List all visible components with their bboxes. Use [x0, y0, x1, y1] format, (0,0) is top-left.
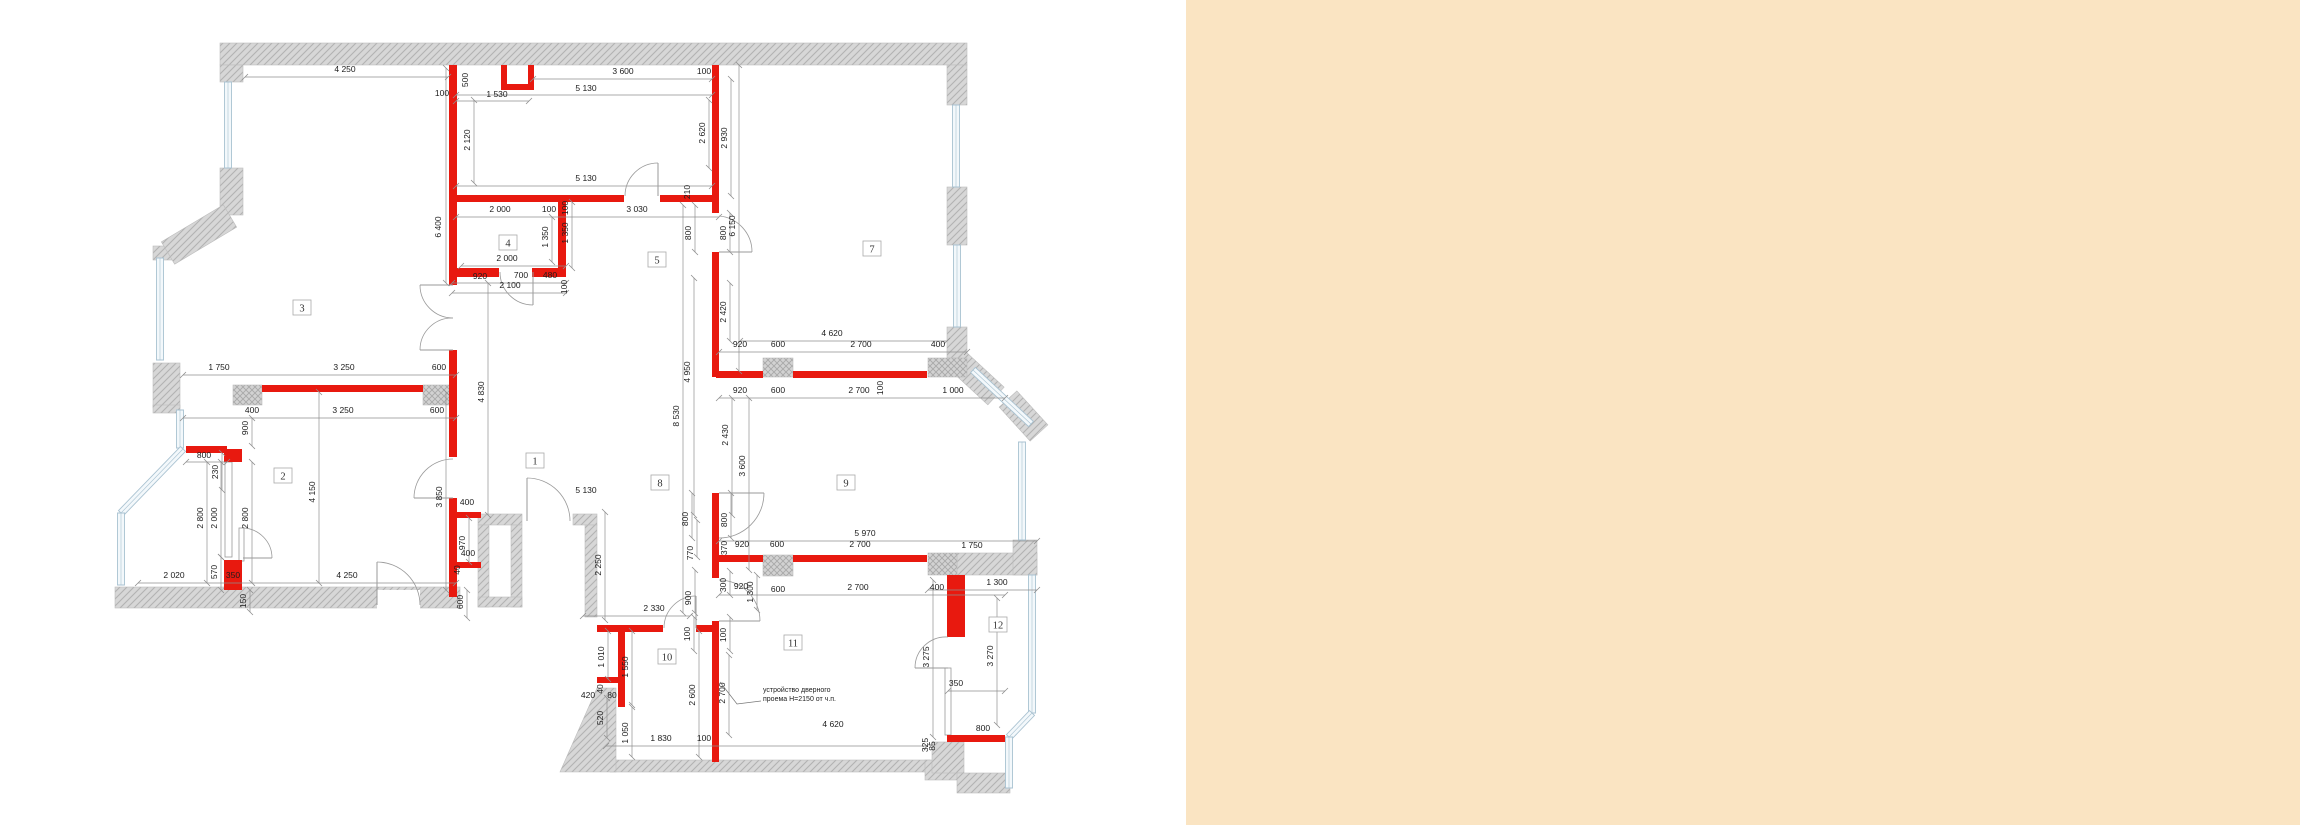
dimension-label: 3 030 — [626, 204, 648, 214]
dimension-label: 2 700 — [849, 539, 871, 549]
thin-partition — [239, 528, 244, 561]
dimension-label: 600 — [430, 405, 444, 415]
dimension-label: 2 800 — [240, 507, 250, 529]
dimension-label: 1 300 — [745, 581, 755, 603]
dimension-label: 1 010 — [596, 646, 606, 668]
dimension-label: 2 700 — [850, 339, 872, 349]
existing-wall — [947, 65, 967, 105]
room-number-label: 7 — [869, 245, 874, 256]
dimension-label: 3 600 — [612, 66, 634, 76]
dimension-label: 2 020 — [163, 570, 185, 580]
room-number-label: 11 — [788, 639, 798, 650]
dimension-label: 2 800 — [195, 507, 205, 529]
dimension-label: 2 700 — [717, 682, 727, 704]
room-number-label: 8 — [657, 479, 662, 490]
room-number-label: 3 — [299, 304, 304, 315]
dimension-label: 350 — [226, 570, 240, 580]
dimension-label: 370 — [719, 541, 729, 555]
dimension-label: 400 — [930, 582, 944, 592]
dimension-label: 920 — [473, 271, 487, 281]
dimension-label: 600 — [432, 362, 446, 372]
existing-pillar — [763, 358, 793, 377]
dimension-label: 2 330 — [643, 603, 665, 613]
existing-wall — [573, 514, 597, 525]
dimension-label: 1 350 — [540, 226, 550, 248]
dimension-label: 600 — [455, 595, 465, 609]
dimension-label: 4 830 — [476, 381, 486, 403]
new-wall-red — [793, 555, 927, 562]
dimension-label: 350 — [949, 678, 963, 688]
dimension-label: 800 — [683, 226, 693, 240]
dimension-label: 1 750 — [961, 540, 983, 550]
dimension-label: 920 — [733, 385, 747, 395]
dimension-label: 5 130 — [575, 83, 597, 93]
dimension-label: 400 — [245, 405, 259, 415]
dimension-label: 500 — [460, 73, 470, 87]
new-wall-red — [457, 512, 481, 518]
annotation-text-line1: устройство дверного — [763, 686, 831, 694]
dimension-label: 520 — [595, 711, 605, 725]
dimension-label: 40 — [452, 565, 462, 575]
dimension-label: 2 430 — [720, 424, 730, 446]
dimension-label: 600 — [771, 385, 785, 395]
new-wall-red — [597, 677, 618, 683]
dimension-label: 100 — [718, 628, 728, 642]
dimension-label: 5 130 — [575, 173, 597, 183]
new-wall-red — [449, 350, 457, 457]
dimension-label: 5 970 — [854, 528, 876, 538]
room-number-label: 10 — [662, 653, 673, 664]
dimension-label: 800 — [197, 450, 211, 460]
dimension-label: 100 — [559, 280, 569, 294]
dimension-label: 100 — [697, 733, 711, 743]
dimension-label: 900 — [683, 591, 693, 605]
dimension-label: 100 — [682, 627, 692, 641]
room-number-label: 9 — [843, 479, 848, 490]
dimension-label: 800 — [976, 723, 990, 733]
dimension-label: 420 — [581, 690, 595, 700]
dimension-label: 6 150 — [727, 215, 737, 237]
dimension-label: 3 600 — [737, 455, 747, 477]
dimension-label: 100 — [697, 66, 711, 76]
new-wall-red — [262, 385, 423, 392]
new-wall-red — [712, 493, 719, 578]
annotation-text-line2: проема H=2150 от ч.п. — [763, 696, 836, 703]
dimension-label: 100 — [560, 201, 570, 215]
dimension-label: 600 — [770, 539, 784, 549]
dimension-label: 230 — [210, 465, 220, 479]
existing-wall — [511, 525, 522, 607]
dimension-label: 2 620 — [697, 122, 707, 144]
dimension-label: 700 — [514, 270, 528, 280]
dimension-label: 100 — [435, 88, 449, 98]
dimension-label: 800 — [719, 513, 729, 527]
floor-plan-page: 4 2501005001 5303 6001005 1302 1202 6202… — [0, 0, 2300, 825]
dimension-label: 2 930 — [719, 127, 729, 149]
existing-wall — [947, 187, 967, 245]
dimension-label: 3 275 — [921, 646, 931, 668]
dimension-label: 85 — [927, 741, 937, 751]
dimension-label: 3 270 — [985, 645, 995, 667]
dimension-label: 800 — [680, 512, 690, 526]
dimension-label: 2 000 — [489, 204, 511, 214]
existing-pillar — [763, 555, 793, 576]
dimension-label: 2 120 — [462, 129, 472, 151]
dimension-label: 6 400 — [433, 216, 443, 238]
dimension-label: 570 — [209, 565, 219, 579]
dimension-label: 40 — [595, 684, 605, 694]
dimension-label: 1 350 — [560, 222, 570, 244]
new-wall-red — [947, 575, 965, 637]
existing-wall — [220, 43, 967, 65]
room-number-label: 4 — [505, 239, 511, 250]
dimension-label: 1 530 — [486, 89, 508, 99]
dimension-label: 770 — [685, 546, 695, 560]
dimension-label: 4 250 — [336, 570, 358, 580]
new-wall-red — [449, 195, 624, 202]
dimension-label: 5 130 — [575, 485, 597, 495]
new-wall-red — [793, 371, 927, 378]
dimension-label: 4 620 — [821, 328, 843, 338]
dimension-label: 2 600 — [687, 684, 697, 706]
room-number-label: 1 — [532, 457, 537, 468]
dimension-label: 300 — [718, 578, 728, 592]
dimension-label: 4 250 — [334, 64, 356, 74]
dimension-label: 4 950 — [682, 361, 692, 383]
dimension-label: 400 — [931, 339, 945, 349]
dimension-label: 900 — [240, 421, 250, 435]
existing-wall — [478, 514, 522, 525]
dimension-label: 8 530 — [671, 405, 681, 427]
existing-wall — [220, 65, 243, 82]
new-wall-red — [449, 498, 457, 597]
dimension-label: 1 750 — [208, 362, 230, 372]
dimension-label: 400 — [460, 497, 474, 507]
room-number-label: 12 — [993, 621, 1004, 632]
dimension-label: 480 — [543, 270, 557, 280]
dimension-label: 2 420 — [718, 301, 728, 323]
dimension-label: 920 — [733, 339, 747, 349]
dimension-label: 1 830 — [650, 733, 672, 743]
dimension-label: 4 620 — [822, 719, 844, 729]
existing-pillar — [928, 358, 967, 377]
dimension-label: 80 — [607, 690, 617, 700]
existing-pillar — [928, 553, 957, 575]
dimension-label: 2 000 — [496, 253, 518, 263]
dimension-label: 210 — [682, 185, 692, 199]
dimension-label: 2 700 — [847, 582, 869, 592]
new-wall-red — [947, 735, 1005, 742]
floor-plan-drawing: 4 2501005001 5303 6001005 1302 1202 6202… — [0, 0, 2300, 825]
existing-wall — [957, 773, 1010, 793]
room-number-label: 5 — [654, 256, 659, 267]
side-panel — [1186, 0, 2300, 825]
dimension-label: 100 — [542, 204, 556, 214]
dimension-label: 150 — [238, 594, 248, 608]
new-wall-red — [224, 449, 242, 462]
existing-wall — [478, 597, 522, 607]
dimension-label: 3 850 — [434, 486, 444, 508]
dimension-label: 1 000 — [942, 385, 964, 395]
dimension-label: 1 550 — [620, 656, 630, 678]
dimension-label: 2 000 — [209, 507, 219, 529]
existing-wall — [153, 405, 180, 413]
dimension-label: 600 — [771, 339, 785, 349]
dimension-label: 3 250 — [332, 405, 354, 415]
dimension-label: 1 050 — [620, 722, 630, 744]
thin-partition — [225, 462, 232, 557]
dimension-label: 1 300 — [986, 577, 1008, 587]
dimension-label: 4 150 — [307, 481, 317, 503]
dimension-label: 920 — [735, 539, 749, 549]
dimension-label: 2 250 — [593, 554, 603, 576]
room-number-label: 2 — [280, 472, 285, 483]
dimension-label: 2 700 — [848, 385, 870, 395]
dimension-label: 400 — [461, 548, 475, 558]
wall-opening — [377, 590, 420, 612]
dimension-label: 2 100 — [499, 280, 521, 290]
existing-wall — [153, 363, 180, 408]
new-wall-red — [712, 65, 719, 213]
existing-wall — [1013, 540, 1037, 575]
dimension-label: 100 — [875, 381, 885, 395]
existing-wall — [610, 760, 930, 772]
existing-pillar — [233, 385, 262, 405]
dimension-label: 600 — [771, 584, 785, 594]
dimension-label: 3 250 — [333, 362, 355, 372]
